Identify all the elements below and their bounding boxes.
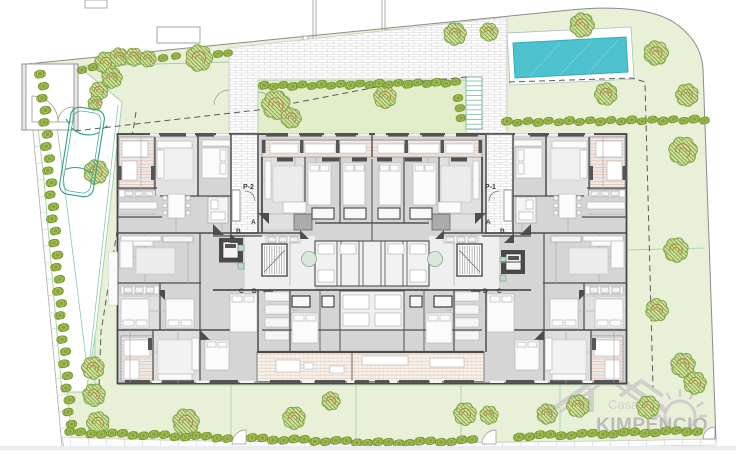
svg-text:D: D bbox=[483, 288, 488, 295]
svg-text:A: A bbox=[486, 219, 491, 226]
svg-text:A: A bbox=[251, 219, 256, 226]
svg-text:B: B bbox=[236, 228, 241, 235]
svg-text:C: C bbox=[497, 288, 502, 295]
svg-text:P-2: P-2 bbox=[243, 184, 254, 191]
svg-text:B: B bbox=[500, 228, 505, 235]
svg-text:D: D bbox=[252, 288, 257, 295]
svg-text:C: C bbox=[239, 288, 244, 295]
svg-text:P-1: P-1 bbox=[485, 184, 496, 191]
